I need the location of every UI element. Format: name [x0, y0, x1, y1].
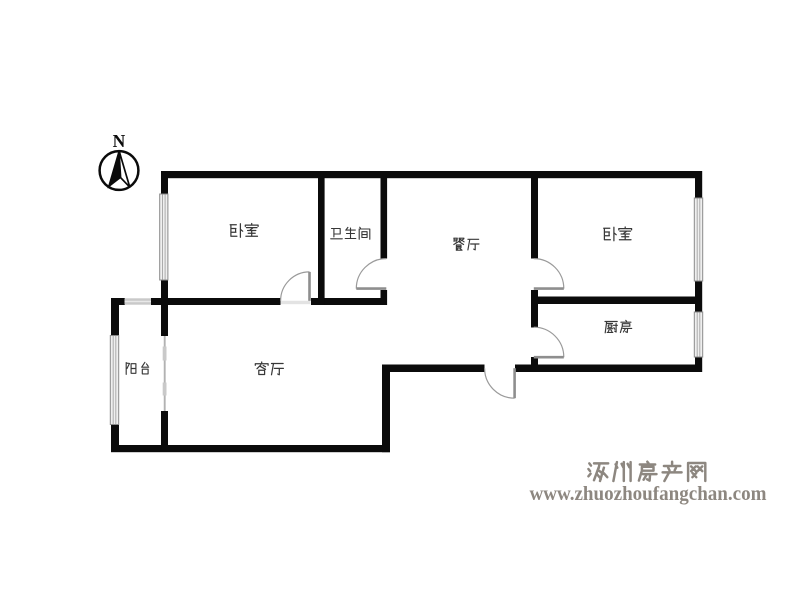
- svg-text:www.zhuozhoufangchan.com: www.zhuozhoufangchan.com: [530, 483, 767, 505]
- svg-text:N: N: [113, 131, 126, 151]
